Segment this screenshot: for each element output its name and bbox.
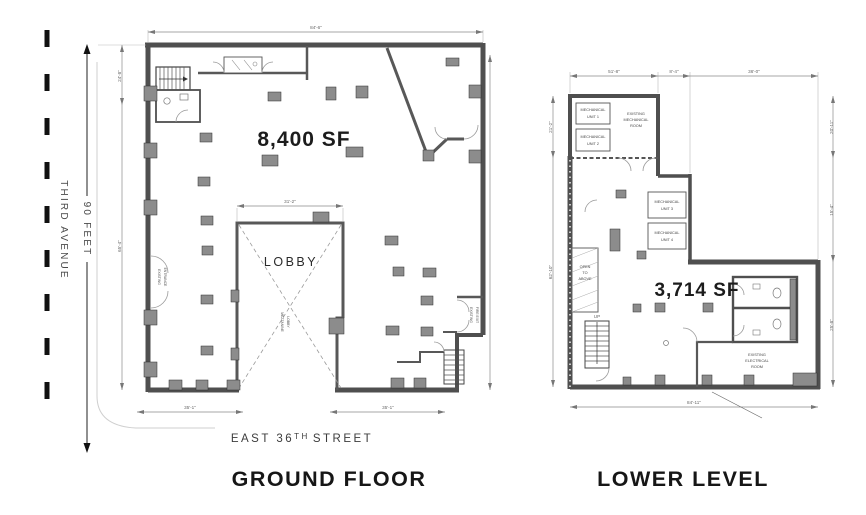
lobby-label: LOBBY — [264, 255, 318, 269]
mech-unit-4-label1: MECHANICAL — [655, 231, 680, 235]
toilet-icon — [773, 288, 781, 298]
mech-unit-1-label2: UNIT 1 — [587, 115, 599, 119]
electrical-line2: ELECTRICAL — [745, 359, 768, 363]
arrow-up-icon — [84, 44, 91, 54]
lower-dim-right-upper: 20'-11" — [829, 120, 834, 134]
lower-dim-top-left: 51'-8" — [608, 69, 620, 74]
mech-room-line3: ROOM — [630, 124, 642, 128]
entrance-note-line2: ENTRANCE — [163, 268, 167, 287]
lower-dim-bottom: 84'-11" — [687, 400, 701, 405]
mech-unit-3-label2: UNIT 3 — [661, 207, 673, 211]
lower-dim-top-mid: 8'-4" — [669, 69, 679, 74]
lobby-dim: 31'-2" — [284, 199, 296, 204]
street-label-suffix: STREET — [313, 433, 373, 445]
lobby-note-line2: LOBBY — [286, 316, 290, 328]
sink-icon — [753, 284, 760, 289]
mech-unit-3: MECHANICAL UNIT 3 — [648, 192, 686, 218]
arrow-down-icon — [84, 443, 91, 453]
lower-dim-left-lower: 62'-10" — [548, 265, 553, 280]
mech-unit-1-label1: MECHANICAL — [581, 108, 606, 112]
ground-vestibule — [198, 46, 307, 80]
leader-line — [712, 392, 762, 418]
lobby-note-line1: MEZZANINE — [280, 312, 284, 332]
lower-stair: UP — [585, 200, 620, 381]
ground-dim-bottom-left: 35'-1" — [184, 405, 196, 410]
existing-mech-room-label: EXISTING MECHANICAL ROOM — [624, 112, 649, 128]
lower-dim-right-lower: 25'-8" — [829, 319, 834, 331]
floor-plan-drawing: 90 FEET THIRD AVENUE LOBBY MEZZANINE LOB… — [0, 0, 866, 515]
ground-dimensions: 84'-6" 24'-8" 65'-4" 31'-2" 35'-1" 35'-1… — [98, 25, 492, 414]
ground-area-label: 8,400 SF — [257, 128, 350, 151]
mech-unit-2-label1: MECHANICAL — [581, 135, 606, 139]
mech-room-line2: MECHANICAL — [624, 118, 649, 122]
lower-level-title: LOWER LEVEL — [597, 467, 769, 491]
ground-dim-top: 84'-6" — [310, 25, 322, 30]
ground-floor-title: GROUND FLOOR — [232, 467, 427, 491]
electrical-line3: ROOM — [751, 365, 763, 369]
mech-unit-1: MECHANICAL UNIT 1 — [576, 103, 610, 124]
ground-angled-room — [387, 48, 478, 161]
ninety-feet-dimension: 90 FEET — [81, 44, 92, 453]
ninety-feet-label: 90 FEET — [81, 202, 92, 257]
ground-floor-plan: LOBBY MEZZANINE LOBBY — [98, 25, 492, 414]
lower-level-plan: MECHANICAL UNIT 1 MECHANICAL UNIT 2 EXIS… — [548, 69, 835, 418]
ground-dim-left-upper: 24'-8" — [117, 70, 122, 82]
open-above-line1: OPEN — [580, 265, 591, 269]
lower-dim-top-right: 36'-0" — [748, 69, 760, 74]
mech-room-line1: EXISTING — [627, 112, 645, 116]
mech-unit-4-label2: UNIT 4 — [661, 238, 673, 242]
street-label-sup: TH — [294, 432, 310, 441]
stair-up-label: UP — [594, 314, 600, 319]
lower-dim-right-mid: 15'-4" — [829, 204, 834, 216]
lower-bathrooms — [733, 277, 797, 342]
lower-dim-left-upper: 21'-2" — [548, 121, 553, 133]
ground-dim-bottom-right: 35'-1" — [382, 405, 394, 410]
mech-unit-3-label1: MECHANICAL — [655, 200, 680, 204]
street-label: EAST 36THSTREET — [231, 432, 373, 445]
exit-note-line2: FIRE EXIT — [475, 307, 479, 323]
toilet-icon — [773, 319, 781, 329]
lower-area-label: 3,714 SF — [654, 280, 739, 301]
entrance-note-line1: EXISTING — [157, 269, 161, 285]
ground-dim-left-lower: 65'-4" — [117, 240, 122, 252]
lobby-room: LOBBY MEZZANINE LOBBY — [231, 212, 344, 390]
open-to-above: OPEN TO ABOVE — [572, 248, 598, 312]
ground-exit-room: EXISTING FIRE EXIT — [397, 297, 483, 384]
electrical-line1: EXISTING — [748, 353, 766, 357]
sink-icon — [753, 330, 760, 335]
ground-entrance: EXISTING ENTRANCE — [151, 256, 168, 308]
open-above-line3: ABOVE — [578, 277, 592, 281]
open-above-line2: TO — [582, 271, 587, 275]
mech-unit-2: MECHANICAL UNIT 2 — [576, 129, 610, 151]
ground-service-room — [156, 90, 200, 122]
street-label-prefix: EAST 36 — [231, 433, 294, 445]
mech-unit-4: MECHANICAL UNIT 4 — [648, 223, 686, 249]
floor-plan-sheet: 90 FEET THIRD AVENUE LOBBY MEZZANINE LOB… — [0, 0, 866, 515]
exit-note-line1: EXISTING — [469, 307, 473, 323]
mech-unit-2-label2: UNIT 2 — [587, 142, 599, 146]
third-avenue-label: THIRD AVENUE — [58, 180, 69, 280]
ground-stair — [156, 67, 190, 90]
